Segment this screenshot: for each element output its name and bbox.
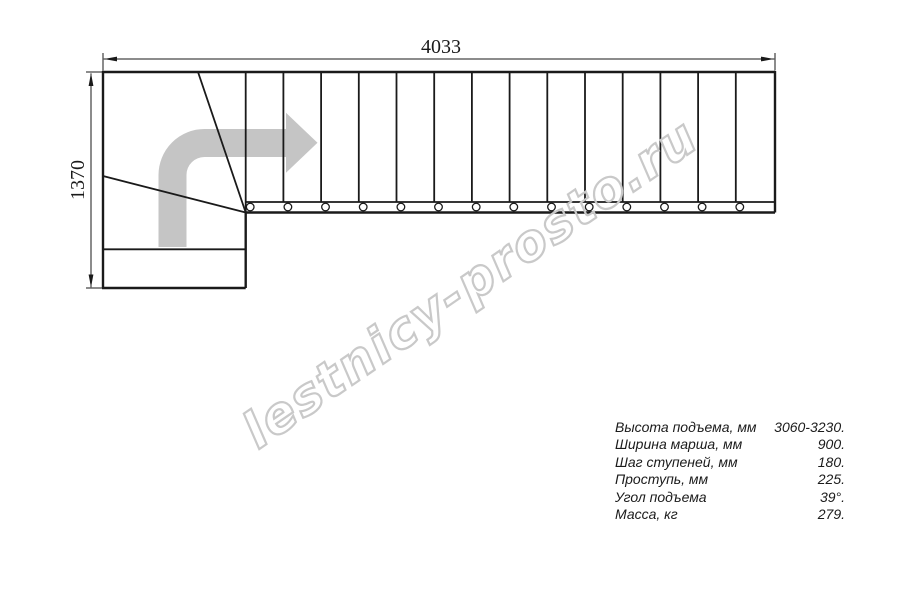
stringer-circle (435, 203, 443, 211)
stringer-circle (510, 203, 518, 211)
stringer-circle (246, 203, 254, 211)
spec-value: 225. (818, 471, 845, 488)
stringer-circle (359, 203, 367, 211)
spec-row: Масса, кг 279. (615, 506, 845, 523)
spec-value: 180. (818, 454, 845, 471)
spec-label: Масса, кг (615, 506, 678, 523)
spec-label: Угол подъема (615, 489, 707, 506)
dimension-arrow-right (761, 57, 774, 62)
stringer-circle (698, 203, 706, 211)
dimension-arrow-up (89, 73, 94, 86)
stringer-circles (246, 203, 743, 211)
watermark-text: lestnicy-prosto.ru (232, 107, 709, 460)
dim-height-label: 1370 (67, 160, 89, 200)
spec-row: Шаг ступеней, мм 180. (615, 454, 845, 471)
stair-outline (102, 71, 775, 288)
stringer-circle (661, 203, 669, 211)
spec-label: Ширина марша, мм (615, 436, 742, 453)
stringer-circle (736, 203, 744, 211)
specs-table: Высота подъема, мм 3060-3230. Ширина мар… (615, 419, 845, 523)
dim-width-label: 4033 (421, 36, 461, 58)
stringer-circle (472, 203, 480, 211)
stringer-circle (284, 203, 292, 211)
spec-label: Проступь, мм (615, 471, 708, 488)
stringer-circle (397, 203, 405, 211)
spec-row: Ширина марша, мм 900. (615, 436, 845, 453)
spec-value: 900. (818, 436, 845, 453)
spec-value: 3060-3230. (774, 419, 845, 436)
spec-label: Высота подъема, мм (615, 419, 757, 436)
dimension-left: 1370 (67, 72, 102, 288)
direction-arrow-shaft (173, 143, 288, 247)
direction-arrow-head (286, 113, 318, 173)
stair-drawing-page: 4033 1370 lestnicy-prosto.ru Высота подъ… (0, 0, 900, 600)
dimension-arrow-left (104, 57, 117, 62)
stringer-circle (322, 203, 330, 211)
dimension-arrow-down (89, 275, 94, 288)
spec-row: Высота подъема, мм 3060-3230. (615, 419, 845, 436)
spec-label: Шаг ступеней, мм (615, 454, 738, 471)
spec-row: Проступь, мм 225. (615, 471, 845, 488)
spec-value: 279. (818, 506, 845, 523)
spec-row: Угол подъема 39°. (615, 489, 845, 506)
dimension-top: 4033 (103, 36, 775, 71)
spec-value: 39°. (820, 489, 845, 506)
